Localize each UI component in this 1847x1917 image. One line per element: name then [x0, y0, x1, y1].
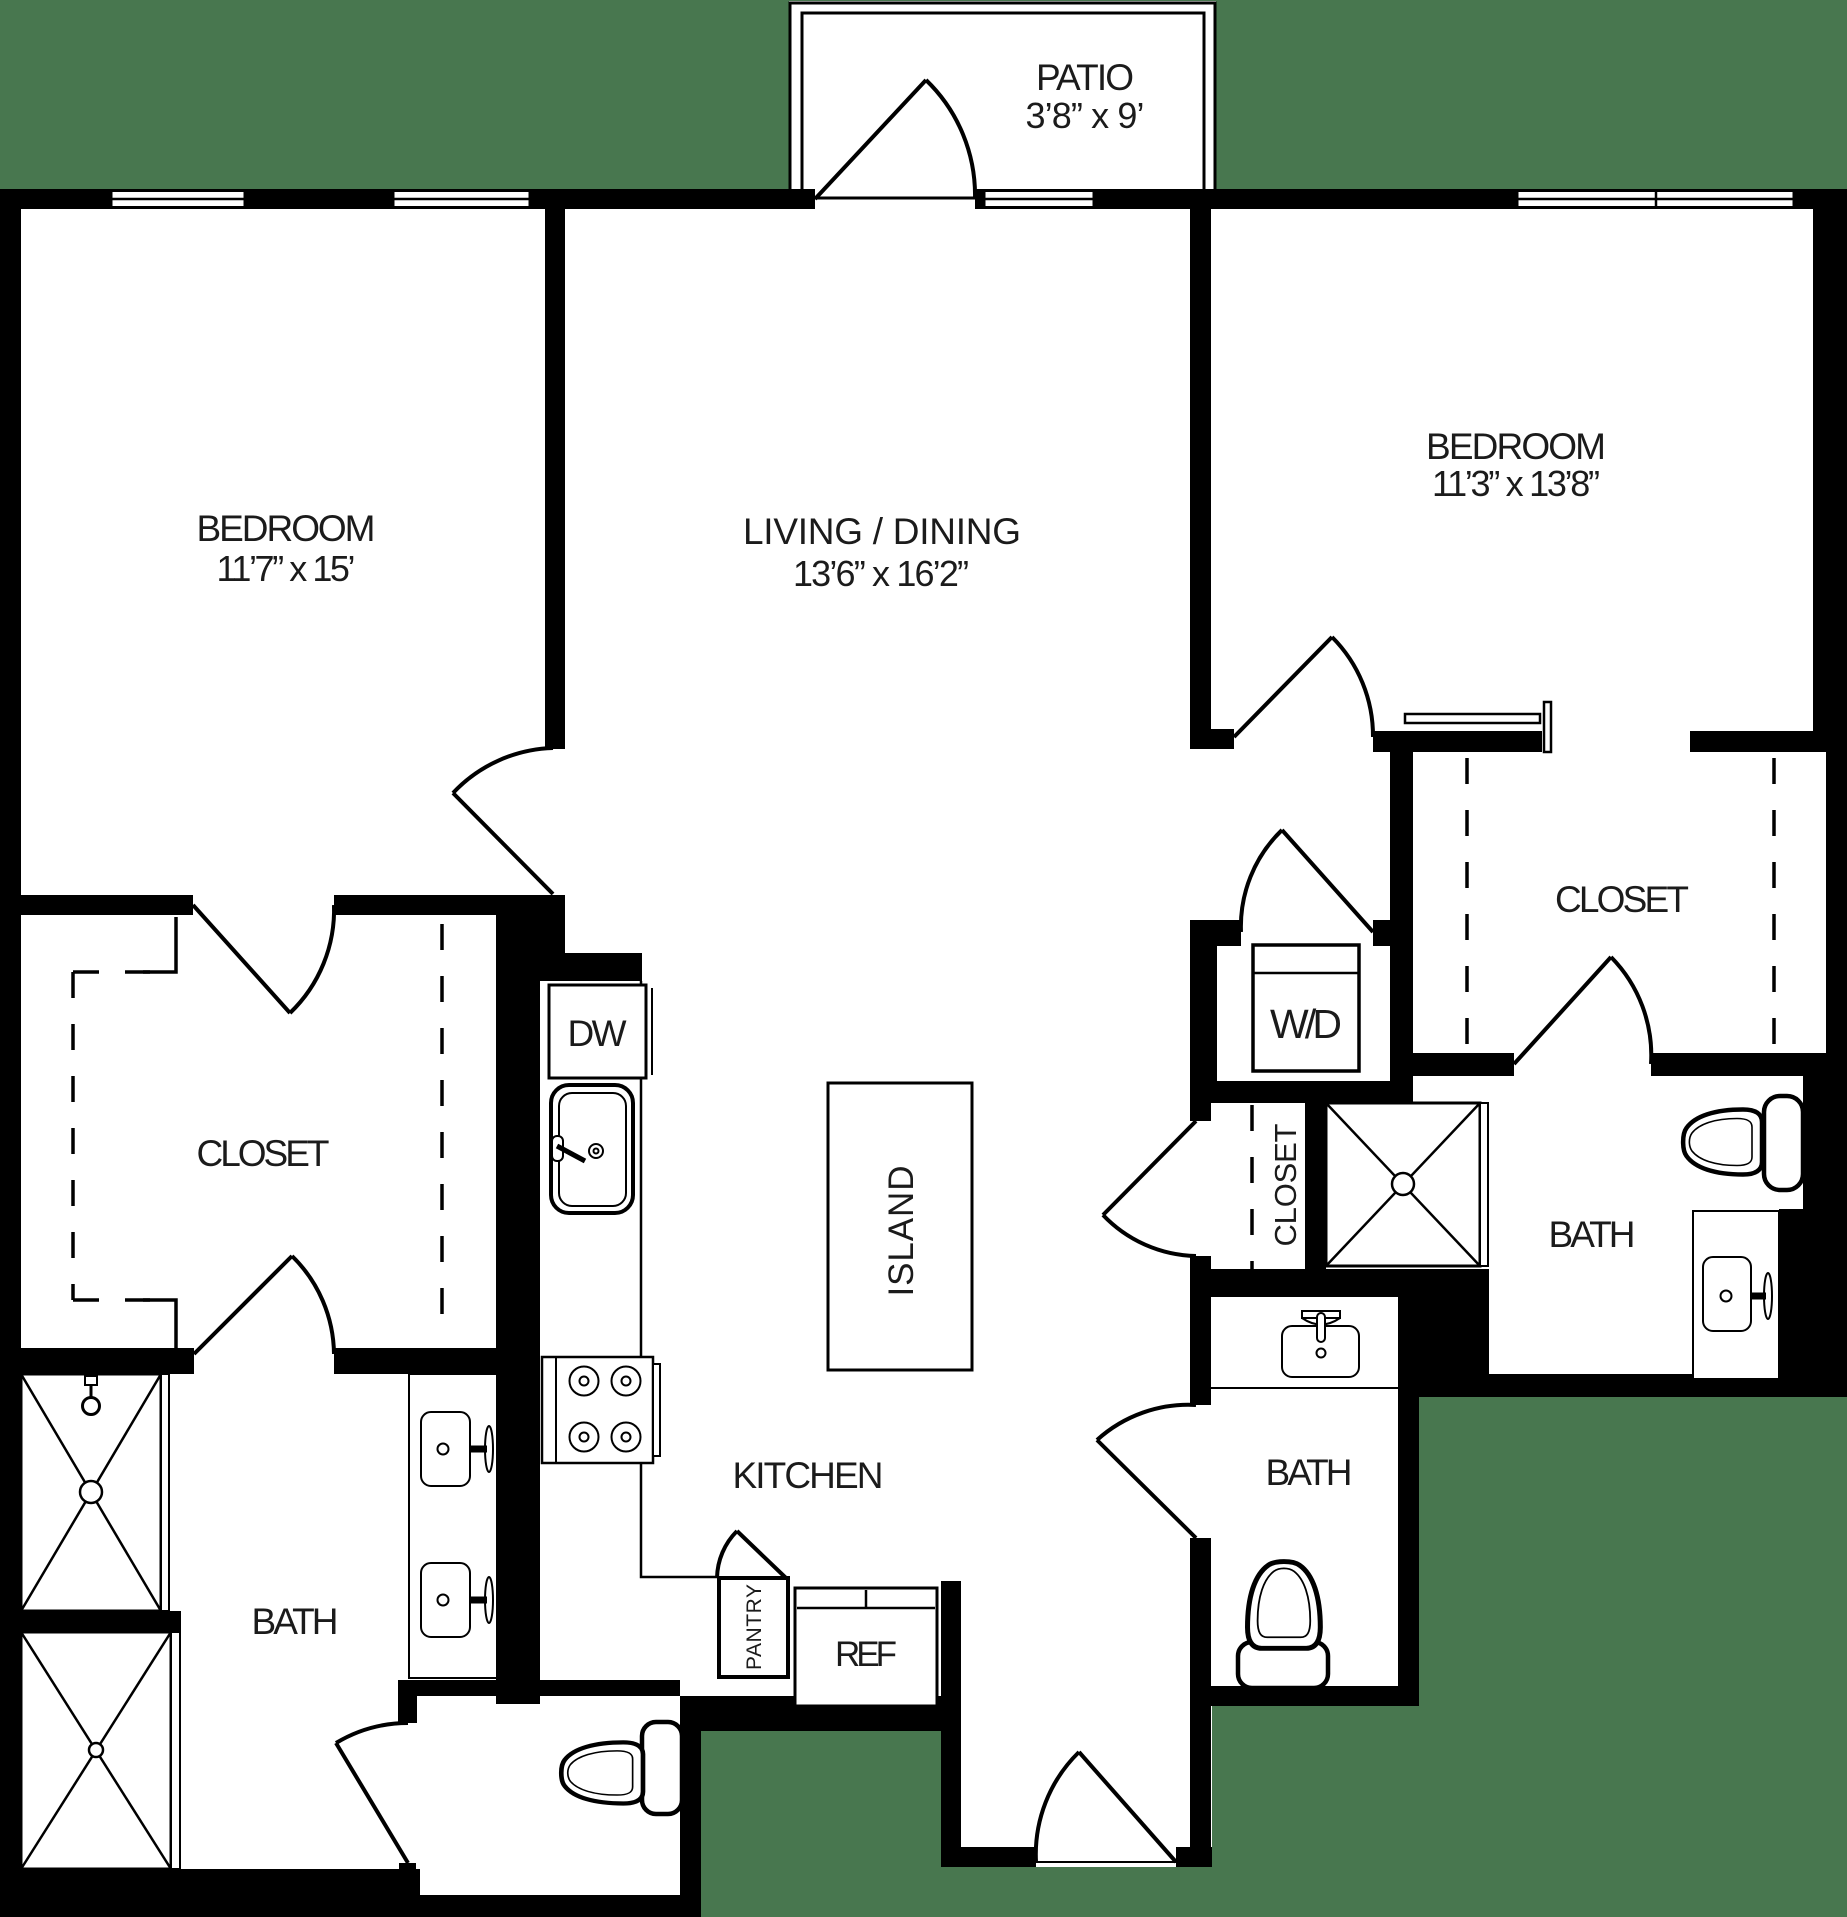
svg-text:CLOSET: CLOSET	[1555, 879, 1689, 920]
svg-text:BEDROOM: BEDROOM	[197, 508, 376, 549]
svg-text:W/D: W/D	[1270, 1001, 1342, 1047]
svg-text:KITCHEN: KITCHEN	[733, 1455, 884, 1496]
svg-text:3’8” x 9’: 3’8” x 9’	[1026, 95, 1145, 136]
svg-text:PATIO: PATIO	[1036, 57, 1134, 98]
svg-text:BATH: BATH	[252, 1601, 339, 1642]
svg-text:LIVING / DINING: LIVING / DINING	[743, 511, 1021, 552]
svg-text:BEDROOM: BEDROOM	[1426, 426, 1606, 467]
svg-text:CLOSET: CLOSET	[1268, 1123, 1303, 1246]
svg-text:CLOSET: CLOSET	[197, 1133, 330, 1174]
svg-text:REF: REF	[835, 1635, 897, 1674]
svg-text:11’7” x 15’: 11’7” x 15’	[217, 548, 356, 589]
svg-text:BATH: BATH	[1266, 1452, 1353, 1493]
svg-text:ISLAND: ISLAND	[882, 1166, 921, 1297]
svg-text:11’3” x 13’8”: 11’3” x 13’8”	[1432, 463, 1600, 504]
svg-text:13’6” x 16’2”: 13’6” x 16’2”	[793, 553, 969, 594]
svg-text:DW: DW	[568, 1013, 627, 1054]
svg-text:PANTRY: PANTRY	[743, 1584, 766, 1670]
svg-text:BATH: BATH	[1549, 1214, 1636, 1255]
